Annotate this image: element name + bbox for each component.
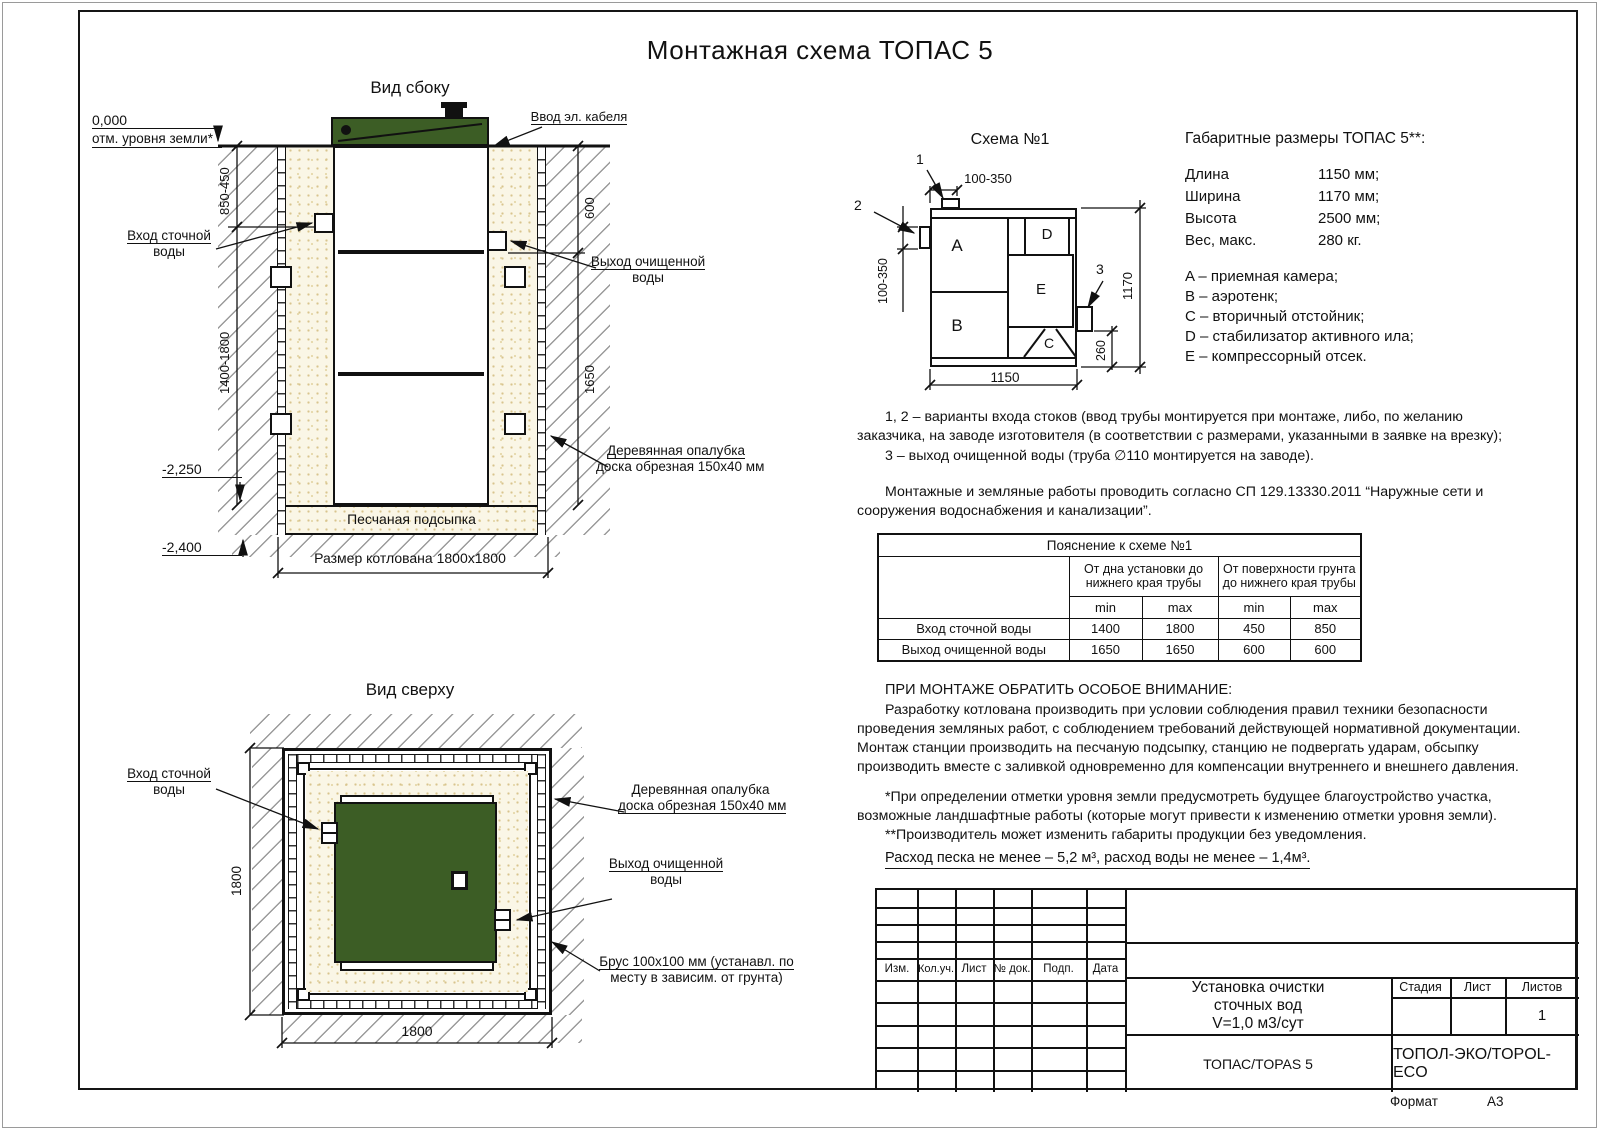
- drawing-sheet: Монтажная схема ТОПАС 5 Вид сбоку 0,000 …: [0, 0, 1600, 1131]
- sand-bed-label: Песчаная подсыпка: [285, 511, 538, 527]
- top-view-dimensions: [216, 748, 624, 1048]
- schema-dimensions: [874, 170, 1146, 390]
- clarifier-funnel-line: [1024, 329, 1045, 357]
- side-view-structure: [218, 124, 610, 146]
- lid-slope-line: [338, 124, 482, 141]
- lid-latch: [341, 125, 351, 135]
- drawing-lines-overlay: [0, 0, 1600, 1131]
- clarifier-funnel-line: [1056, 329, 1076, 357]
- dimension-ticks: [232, 141, 1145, 1048]
